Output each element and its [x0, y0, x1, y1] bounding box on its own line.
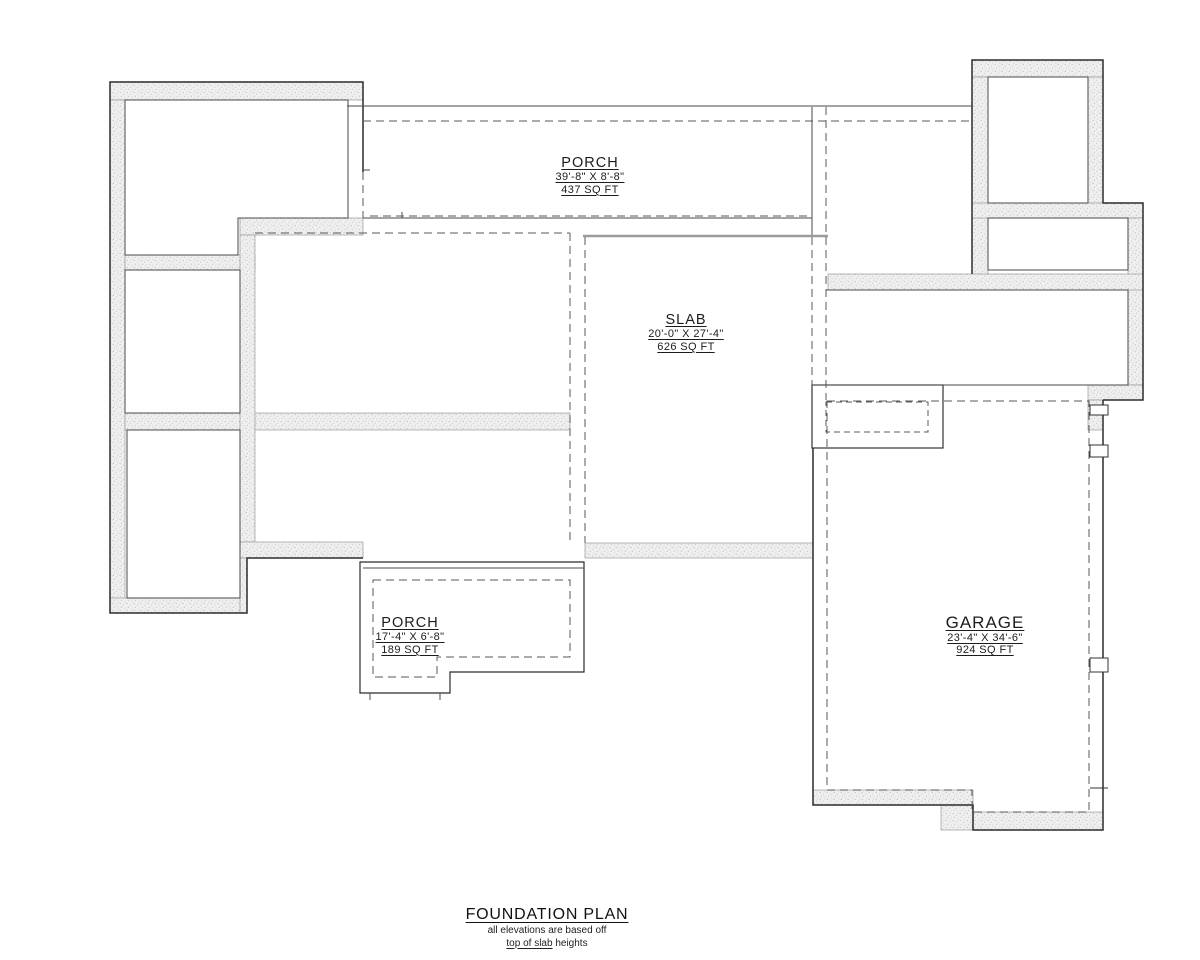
room-label-garage: GARAGE 23'-4" X 34'-6" 924 SQ FT	[946, 613, 1025, 657]
room-label-porch-bottom: PORCH 17'-4" X 6'-8" 189 SQ FT	[376, 615, 445, 656]
porch-bottom-dimensions: 17'-4" X 6'-8"	[376, 631, 445, 643]
porch-bottom-name: PORCH	[376, 615, 445, 631]
plan-note-underlined: top of slab	[506, 938, 552, 949]
foundation-plan-sheet: PORCH 39'-8" X 8'-8" 437 SQ FT SLAB 20'-…	[0, 0, 1200, 960]
porch-bottom-area: 189 SQ FT	[376, 644, 445, 656]
garage-dimensions: 23'-4" X 34'-6"	[946, 632, 1025, 644]
room-label-porch-top: PORCH 39'-8" X 8'-8" 437 SQ FT	[556, 155, 625, 196]
foundation-plan-drawing	[0, 0, 1200, 960]
room-label-slab: SLAB 20'-0" X 27'-4" 626 SQ FT	[648, 312, 724, 353]
plan-note-rest: heights	[553, 938, 588, 949]
porch-top-dimensions: 39'-8" X 8'-8"	[556, 171, 625, 183]
porch-top-area: 437 SQ FT	[556, 184, 625, 196]
slab-area: 626 SQ FT	[648, 341, 724, 353]
slab-dimensions: 20'-0" X 27'-4"	[648, 328, 724, 340]
garage-walls	[813, 790, 1103, 830]
garage-area: 924 SQ FT	[946, 644, 1025, 656]
title-block: FOUNDATION PLAN all elevations are based…	[466, 905, 629, 950]
plan-note-line2: top of slab heights	[466, 938, 629, 951]
slab-name: SLAB	[648, 312, 724, 328]
porch-top-name: PORCH	[556, 155, 625, 171]
garage-pilasters	[1090, 405, 1108, 788]
garage-name: GARAGE	[946, 613, 1025, 632]
dashed-boundaries	[255, 107, 1089, 812]
garage-stoop-pad	[812, 385, 943, 448]
plan-note-line1: all elevations are based off	[466, 925, 629, 938]
plan-title: FOUNDATION PLAN	[466, 905, 629, 925]
